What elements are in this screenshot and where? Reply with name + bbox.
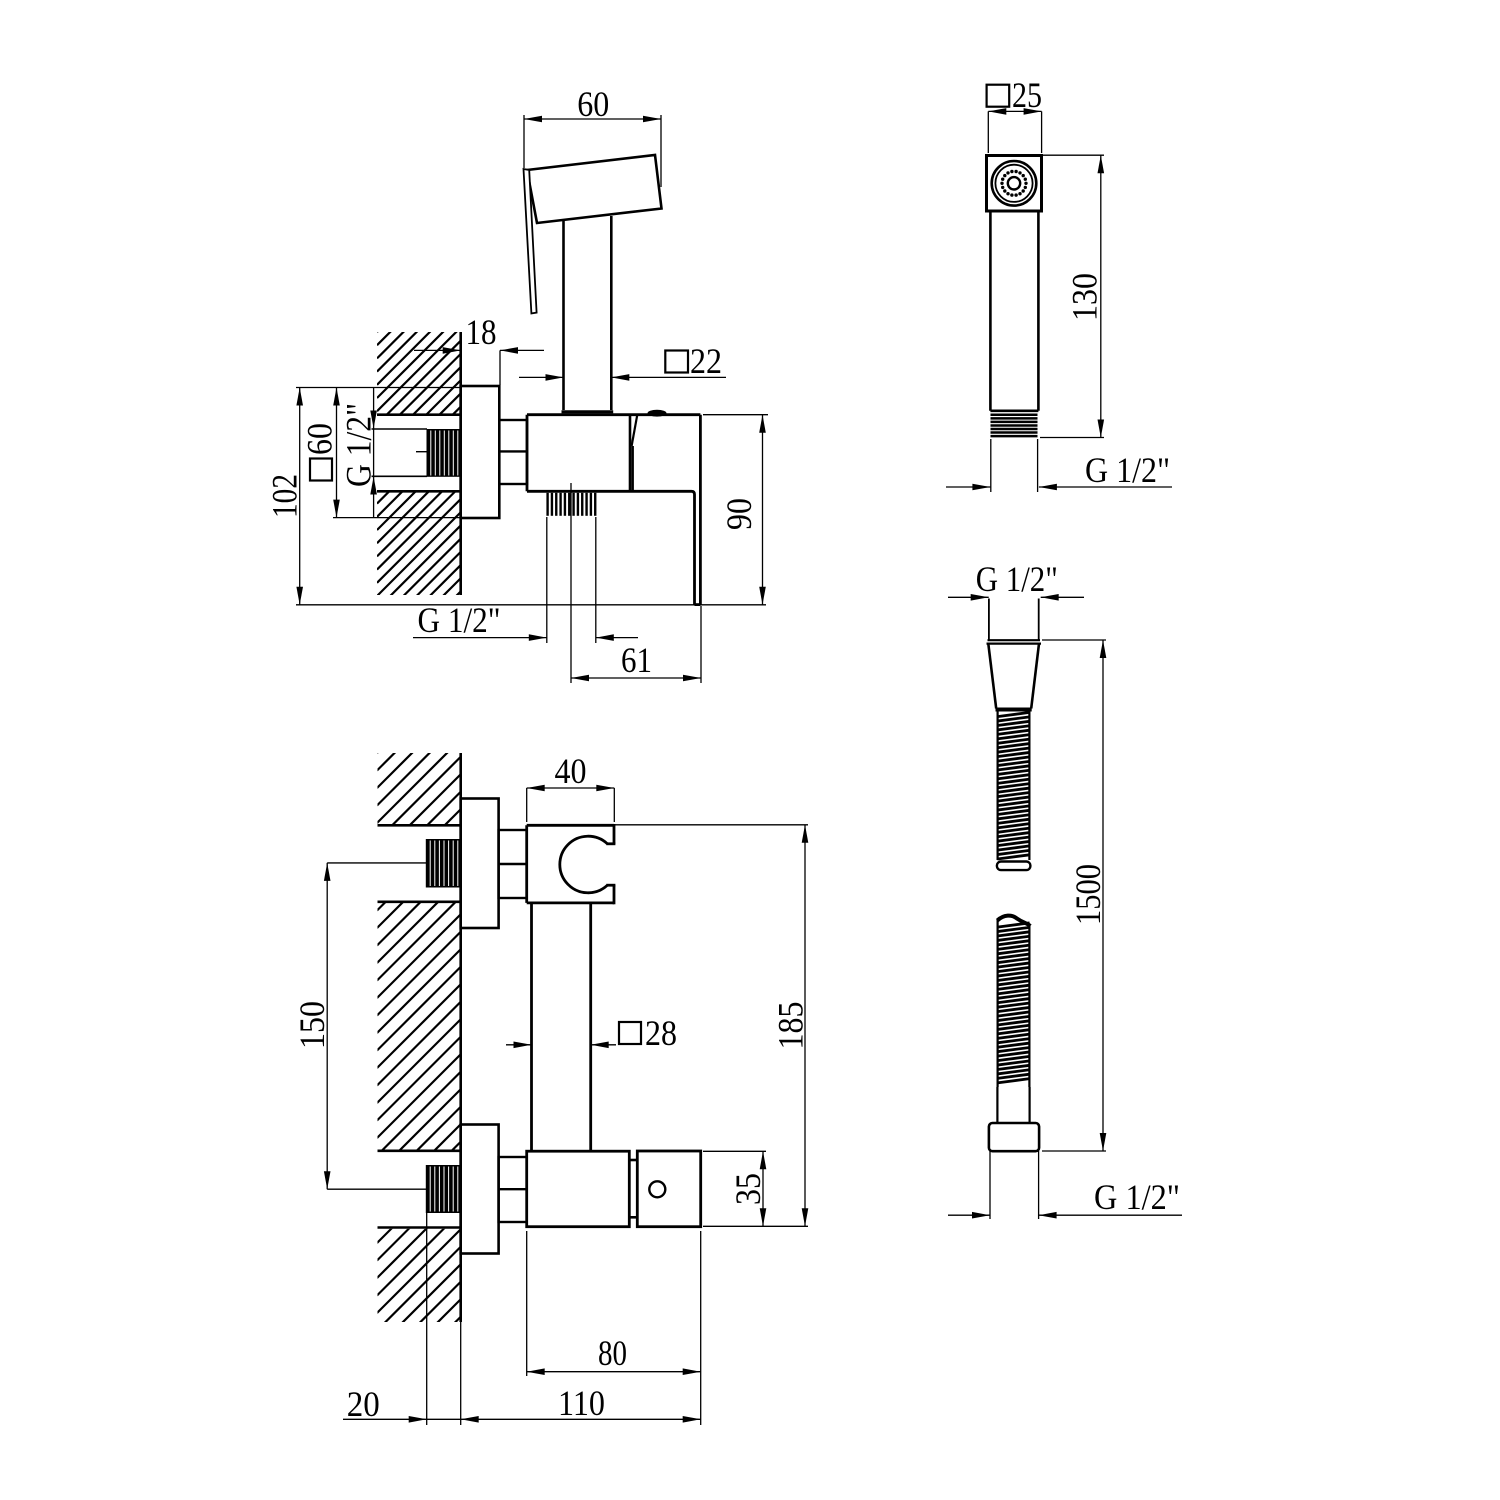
svg-text:60: 60	[577, 84, 609, 124]
svg-text:G 1/2": G 1/2"	[1094, 1177, 1180, 1217]
svg-text:20: 20	[347, 1384, 380, 1424]
svg-text:18: 18	[466, 312, 497, 352]
svg-text:110: 110	[558, 1383, 605, 1423]
svg-text:102: 102	[265, 474, 305, 518]
svg-text:40: 40	[555, 751, 587, 791]
svg-text:130: 130	[1065, 273, 1105, 321]
svg-text:150: 150	[292, 1001, 332, 1049]
svg-text:G 1/2": G 1/2"	[339, 403, 379, 487]
svg-text:G 1/2": G 1/2"	[1085, 450, 1170, 490]
svg-text:61: 61	[621, 640, 652, 680]
svg-text:185: 185	[771, 1002, 811, 1050]
svg-text:G 1/2": G 1/2"	[976, 559, 1058, 599]
svg-text:35: 35	[728, 1173, 768, 1205]
svg-text:60: 60	[300, 423, 340, 455]
svg-text:1500: 1500	[1068, 864, 1108, 925]
svg-text:90: 90	[719, 498, 759, 530]
svg-text:80: 80	[598, 1333, 627, 1373]
svg-text:G 1/2": G 1/2"	[418, 600, 501, 640]
svg-text:28: 28	[645, 1013, 677, 1053]
svg-text:22: 22	[690, 341, 722, 381]
